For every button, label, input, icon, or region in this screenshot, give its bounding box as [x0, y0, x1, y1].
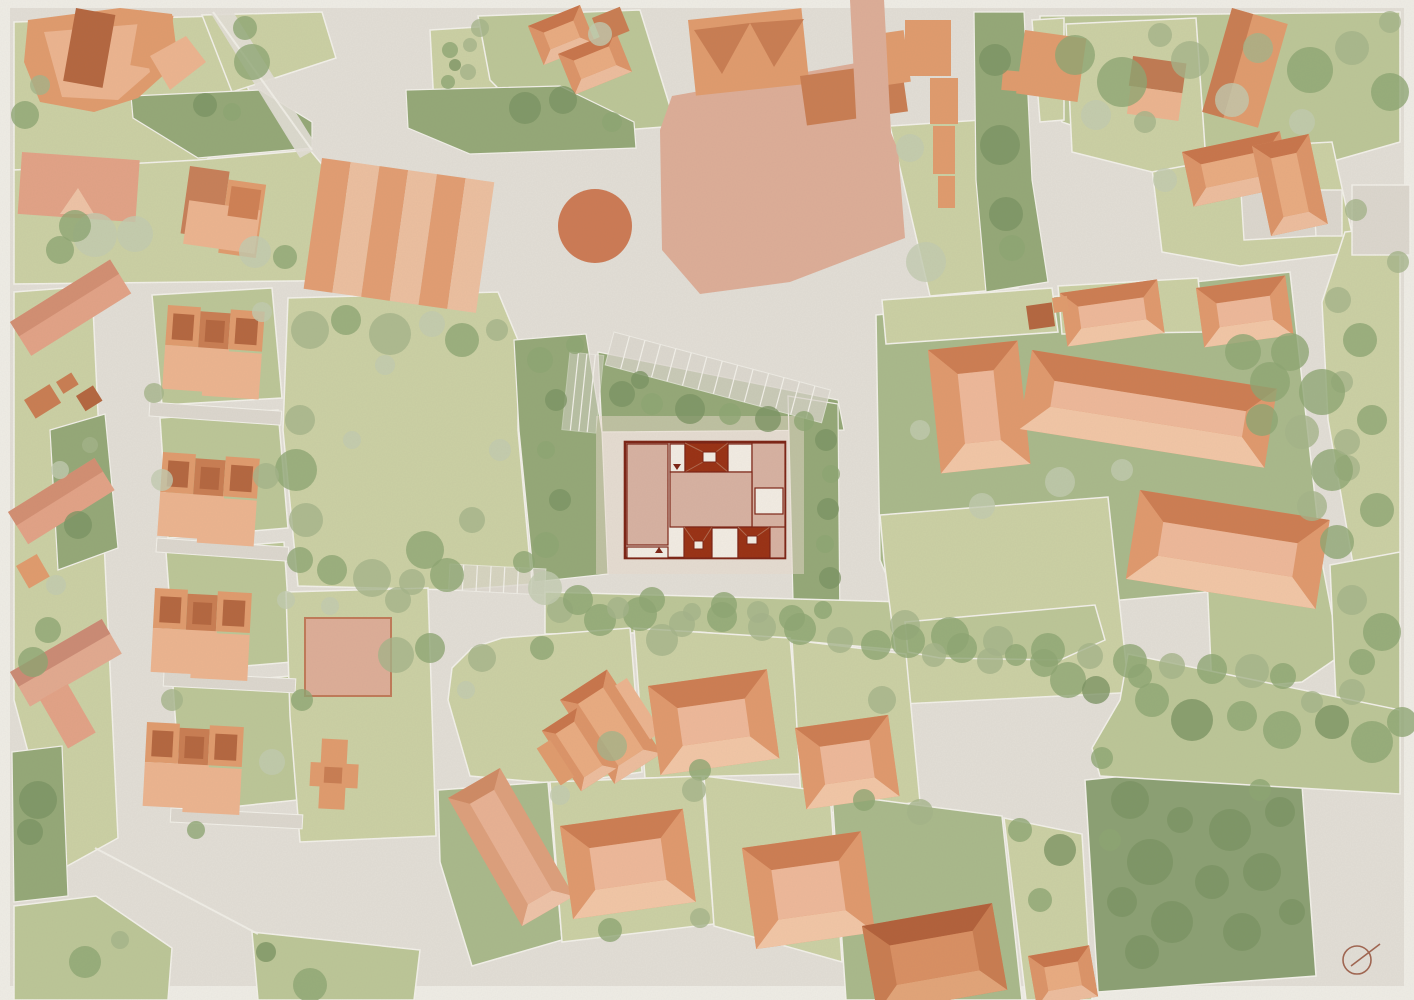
site-plan-map: [0, 0, 1414, 1000]
site-plan-canvas: [0, 0, 1414, 1000]
paper-grain-overlay: [0, 0, 1414, 1000]
